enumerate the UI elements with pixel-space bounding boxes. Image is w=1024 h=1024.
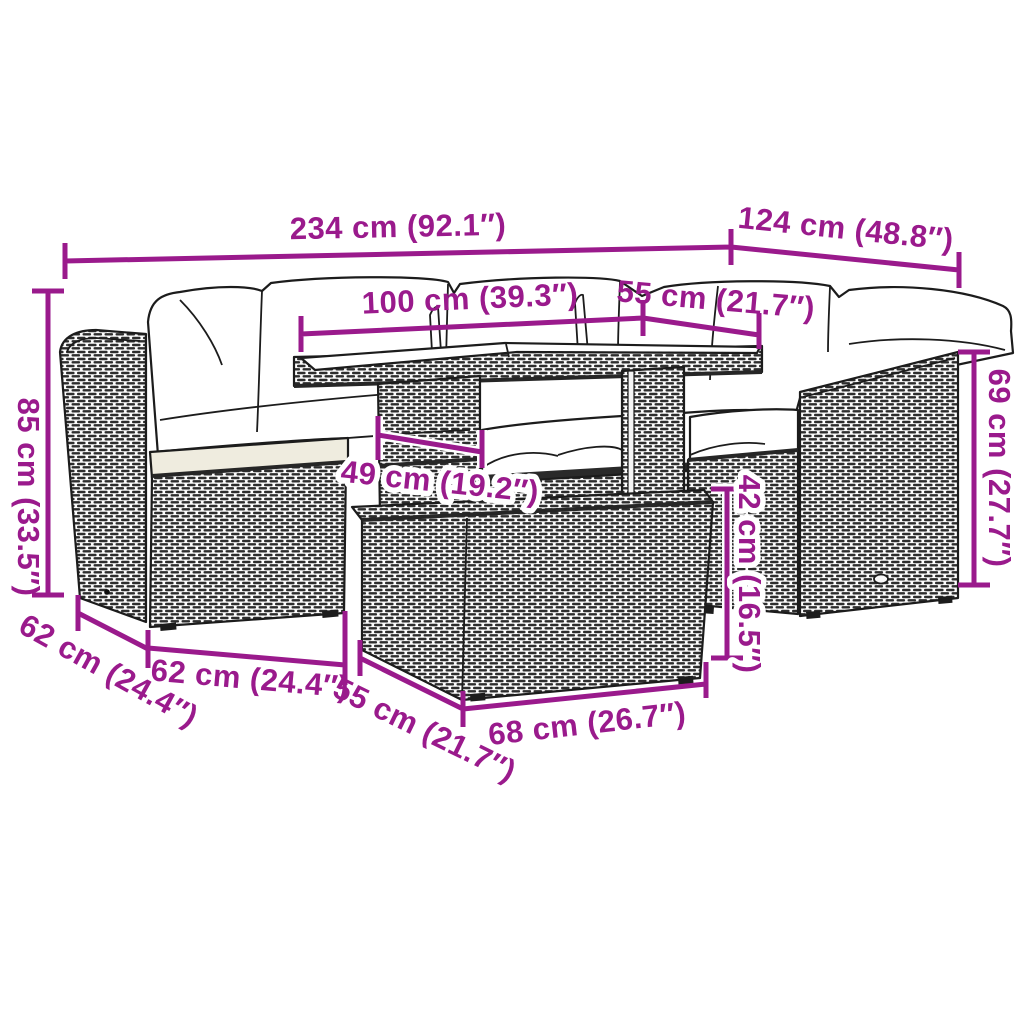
dimension-label-back-height: 85 cm (33.5″) [11, 398, 46, 597]
left-sofa-foot-right [322, 610, 339, 619]
right-chair-foot-left [806, 611, 821, 619]
ottoman-front [362, 502, 713, 700]
right-chair-foot-right [938, 596, 953, 604]
left-arm-drain-hole [104, 589, 110, 595]
ottoman-foot-left [470, 693, 486, 702]
dimension-label-arm-height: 69 cm (27.7″) [982, 369, 1017, 568]
left-sofa-foot-left [160, 623, 177, 632]
left-sofa-base [150, 462, 346, 627]
dimension-label-total-width: 234 cm (92.1″) [289, 207, 506, 247]
product-dimension-diagram: 234 cm (92.1″) 124 cm (48.8″) 100 cm (39… [0, 0, 1024, 1024]
diagram-canvas: 234 cm (92.1″) 124 cm (48.8″) 100 cm (39… [0, 0, 1024, 1024]
dimension-label-seat-height: 42 cm (16.5″) [732, 475, 767, 674]
right-chair-drain-hole [874, 575, 888, 584]
table-pedestal-right-slit [628, 371, 634, 508]
